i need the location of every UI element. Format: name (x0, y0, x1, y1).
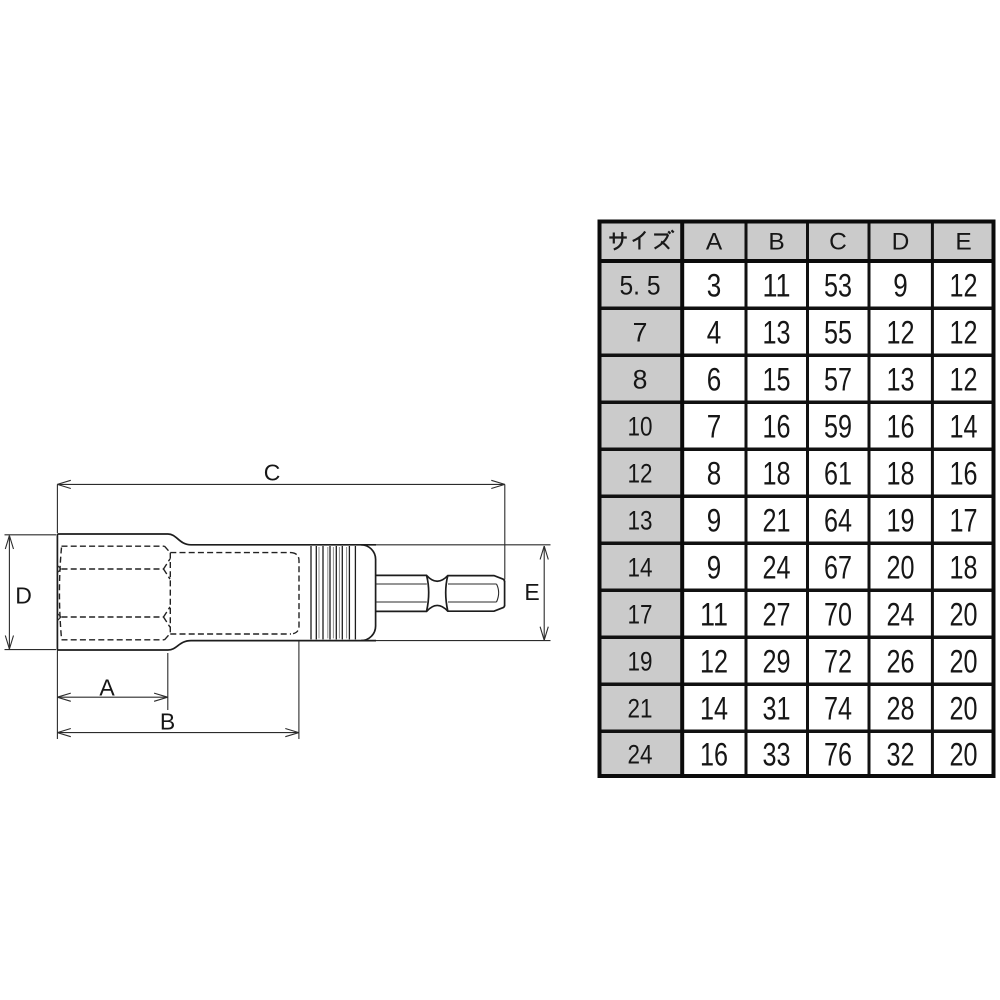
svg-text:5. 5: 5. 5 (620, 270, 661, 300)
svg-text:24: 24 (887, 595, 915, 632)
svg-text:6: 6 (707, 360, 722, 397)
svg-text:32: 32 (887, 735, 915, 772)
svg-text:B: B (160, 709, 175, 735)
svg-text:27: 27 (763, 595, 791, 632)
svg-text:9: 9 (707, 548, 722, 585)
svg-text:13: 13 (887, 360, 915, 397)
svg-text:D: D (892, 229, 910, 256)
svg-text:59: 59 (824, 407, 852, 444)
svg-text:70: 70 (824, 595, 852, 632)
svg-text:28: 28 (887, 689, 915, 726)
svg-text:12: 12 (950, 266, 978, 303)
svg-text:12: 12 (628, 458, 653, 488)
svg-text:18: 18 (763, 454, 791, 491)
svg-text:33: 33 (763, 735, 791, 772)
svg-text:17: 17 (950, 501, 978, 538)
svg-text:26: 26 (887, 642, 915, 679)
svg-text:7: 7 (707, 407, 722, 444)
svg-text:55: 55 (824, 313, 852, 350)
svg-text:74: 74 (824, 689, 852, 726)
svg-text:18: 18 (950, 548, 978, 585)
svg-text:11: 11 (700, 595, 728, 632)
svg-text:17: 17 (628, 599, 653, 629)
svg-text:16: 16 (700, 735, 728, 772)
svg-text:C: C (829, 229, 847, 256)
svg-text:14: 14 (950, 407, 978, 444)
svg-text:15: 15 (763, 360, 791, 397)
svg-text:16: 16 (887, 407, 915, 444)
svg-text:53: 53 (824, 266, 852, 303)
svg-text:A: A (706, 229, 723, 256)
svg-text:31: 31 (763, 689, 791, 726)
svg-text:3: 3 (707, 266, 722, 303)
svg-text:12: 12 (887, 313, 915, 350)
svg-text:24: 24 (628, 739, 653, 769)
svg-text:11: 11 (763, 266, 791, 303)
svg-text:19: 19 (628, 646, 653, 676)
svg-text:4: 4 (707, 313, 722, 350)
svg-text:21: 21 (763, 501, 791, 538)
svg-text:19: 19 (887, 501, 915, 538)
svg-text:7: 7 (633, 317, 648, 347)
svg-text:20: 20 (950, 689, 978, 726)
svg-text:14: 14 (700, 689, 728, 726)
svg-text:24: 24 (763, 548, 791, 585)
svg-text:20: 20 (950, 642, 978, 679)
svg-text:8: 8 (707, 454, 722, 491)
svg-text:A: A (99, 675, 115, 701)
svg-text:C: C (264, 460, 281, 486)
svg-text:61: 61 (824, 454, 852, 491)
svg-text:72: 72 (824, 642, 852, 679)
svg-text:16: 16 (763, 407, 791, 444)
svg-text:9: 9 (707, 501, 722, 538)
svg-text:12: 12 (950, 360, 978, 397)
svg-text:67: 67 (824, 548, 852, 585)
svg-text:13: 13 (628, 505, 653, 535)
svg-text:20: 20 (950, 595, 978, 632)
svg-text:12: 12 (950, 313, 978, 350)
svg-text:B: B (768, 229, 784, 256)
svg-text:20: 20 (950, 735, 978, 772)
svg-text:64: 64 (824, 501, 852, 538)
svg-text:14: 14 (628, 552, 653, 582)
svg-text:29: 29 (763, 642, 791, 679)
svg-text:13: 13 (763, 313, 791, 350)
svg-text:10: 10 (628, 411, 653, 441)
svg-text:8: 8 (633, 364, 648, 394)
svg-text:E: E (955, 229, 971, 256)
svg-text:76: 76 (824, 735, 852, 772)
svg-text:12: 12 (700, 642, 728, 679)
svg-text:16: 16 (950, 454, 978, 491)
svg-text:D: D (15, 583, 32, 609)
svg-text:18: 18 (887, 454, 915, 491)
svg-text:57: 57 (824, 360, 852, 397)
svg-text:E: E (524, 579, 539, 605)
svg-text:21: 21 (628, 693, 653, 723)
svg-text:9: 9 (893, 266, 908, 303)
svg-text:20: 20 (887, 548, 915, 585)
